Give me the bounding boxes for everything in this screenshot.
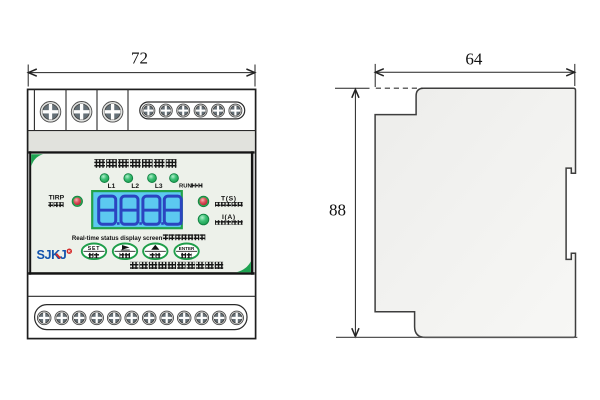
svg-text:Real-time status display scree: Real-time status display screen <box>72 236 163 242</box>
svg-text:RUN: RUN <box>179 184 192 190</box>
svg-text:I(A): I(A) <box>222 214 236 221</box>
svg-text:T(S): T(S) <box>221 196 237 203</box>
svg-text:72: 72 <box>131 49 148 68</box>
svg-text:L3: L3 <box>155 183 163 190</box>
svg-text:ENTER: ENTER <box>179 246 195 251</box>
svg-text:64: 64 <box>465 50 483 69</box>
svg-text:L1: L1 <box>108 183 116 190</box>
svg-text:SJKJ: SJKJ <box>37 248 67 262</box>
svg-text:TIRP: TIRP <box>49 195 65 202</box>
svg-text:R: R <box>68 250 71 254</box>
svg-text:L2: L2 <box>131 183 139 190</box>
svg-text:SET: SET <box>88 246 101 252</box>
svg-text:88: 88 <box>329 201 346 220</box>
